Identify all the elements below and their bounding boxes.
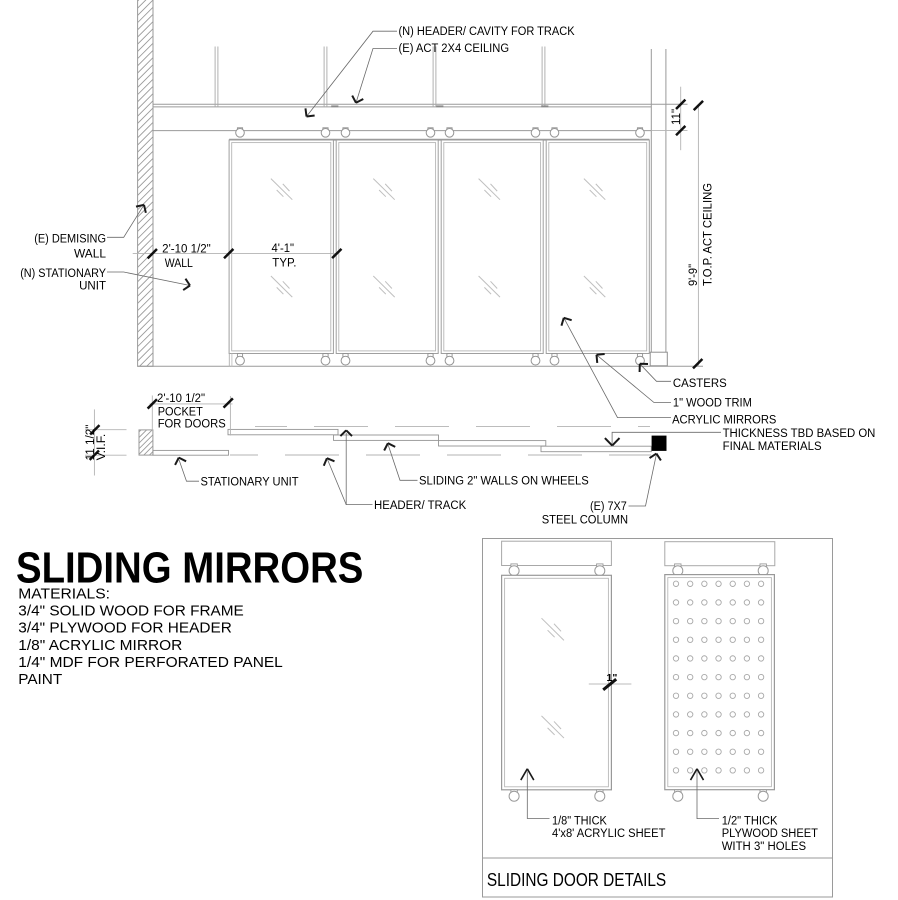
svg-text:CASTERS: CASTERS — [673, 378, 727, 390]
svg-text:1/8" THICK: 1/8" THICK — [552, 816, 607, 828]
svg-text:WALL: WALL — [165, 258, 194, 270]
svg-text:1/8" ACRYLIC MIRROR: 1/8" ACRYLIC MIRROR — [18, 637, 182, 654]
svg-text:PLYWOOD SHEET: PLYWOOD SHEET — [722, 828, 818, 840]
svg-text:4'x8' ACRYLIC SHEET: 4'x8' ACRYLIC SHEET — [552, 828, 665, 840]
svg-text:(E) DEMISING: (E) DEMISING — [34, 233, 106, 245]
svg-text:MATERIALS:: MATERIALS: — [18, 586, 110, 603]
svg-text:TYP.: TYP. — [272, 257, 296, 269]
svg-text:(N) STATIONARY: (N) STATIONARY — [20, 268, 106, 280]
svg-text:WITH 3" HOLES: WITH 3" HOLES — [722, 841, 807, 853]
svg-text:FOR DOORS: FOR DOORS — [158, 418, 226, 430]
svg-text:(E) 7X7: (E) 7X7 — [590, 501, 627, 513]
svg-text:THICKNESS TBD BASED ON: THICKNESS TBD BASED ON — [723, 428, 876, 440]
svg-text:11": 11" — [671, 109, 683, 125]
svg-text:3/4" PLYWOOD FOR HEADER: 3/4" PLYWOOD FOR HEADER — [18, 620, 232, 637]
svg-text:V.I.F.: V.I.F. — [96, 434, 108, 461]
svg-text:11 1/2": 11 1/2" — [85, 425, 97, 461]
svg-text:POCKET: POCKET — [158, 406, 203, 418]
svg-text:SLIDING 2" WALLS ON WHEELS: SLIDING 2" WALLS ON WHEELS — [419, 476, 589, 488]
svg-text:HEADER/ TRACK: HEADER/ TRACK — [374, 500, 467, 512]
svg-text:ACRYLIC MIRRORS: ACRYLIC MIRRORS — [672, 414, 777, 426]
svg-text:1/2" THICK: 1/2" THICK — [722, 816, 778, 828]
svg-text:T.O.P. ACT CEILING: T.O.P. ACT CEILING — [703, 183, 715, 286]
svg-text:WALL: WALL — [74, 249, 107, 261]
svg-text:(E) ACT 2X4 CEILING: (E) ACT 2X4 CEILING — [399, 43, 510, 55]
svg-text:9'-9": 9'-9" — [688, 264, 700, 286]
svg-text:2'-10 1/2": 2'-10 1/2" — [162, 244, 211, 256]
svg-text:1": 1" — [607, 672, 618, 684]
svg-text:STEEL COLUMN: STEEL COLUMN — [542, 515, 628, 527]
svg-text:FINAL MATERIALS: FINAL MATERIALS — [723, 441, 822, 453]
svg-text:1" WOOD TRIM: 1" WOOD TRIM — [673, 397, 752, 409]
svg-text:3/4" SOLID WOOD FOR FRAME: 3/4" SOLID WOOD FOR FRAME — [18, 603, 244, 620]
svg-text:PAINT: PAINT — [18, 671, 62, 688]
svg-text:2'-10 1/2": 2'-10 1/2" — [157, 393, 205, 405]
svg-text:1/4" MDF FOR PERFORATED PANEL: 1/4" MDF FOR PERFORATED PANEL — [18, 654, 283, 671]
svg-text:(N) HEADER/ CAVITY FOR TRACK: (N) HEADER/ CAVITY FOR TRACK — [399, 26, 575, 38]
svg-text:STATIONARY UNIT: STATIONARY UNIT — [201, 476, 299, 488]
svg-text:SLIDING DOOR DETAILS: SLIDING DOOR DETAILS — [487, 869, 666, 890]
svg-text:UNIT: UNIT — [79, 281, 106, 293]
svg-text:4'-1": 4'-1" — [272, 243, 295, 255]
